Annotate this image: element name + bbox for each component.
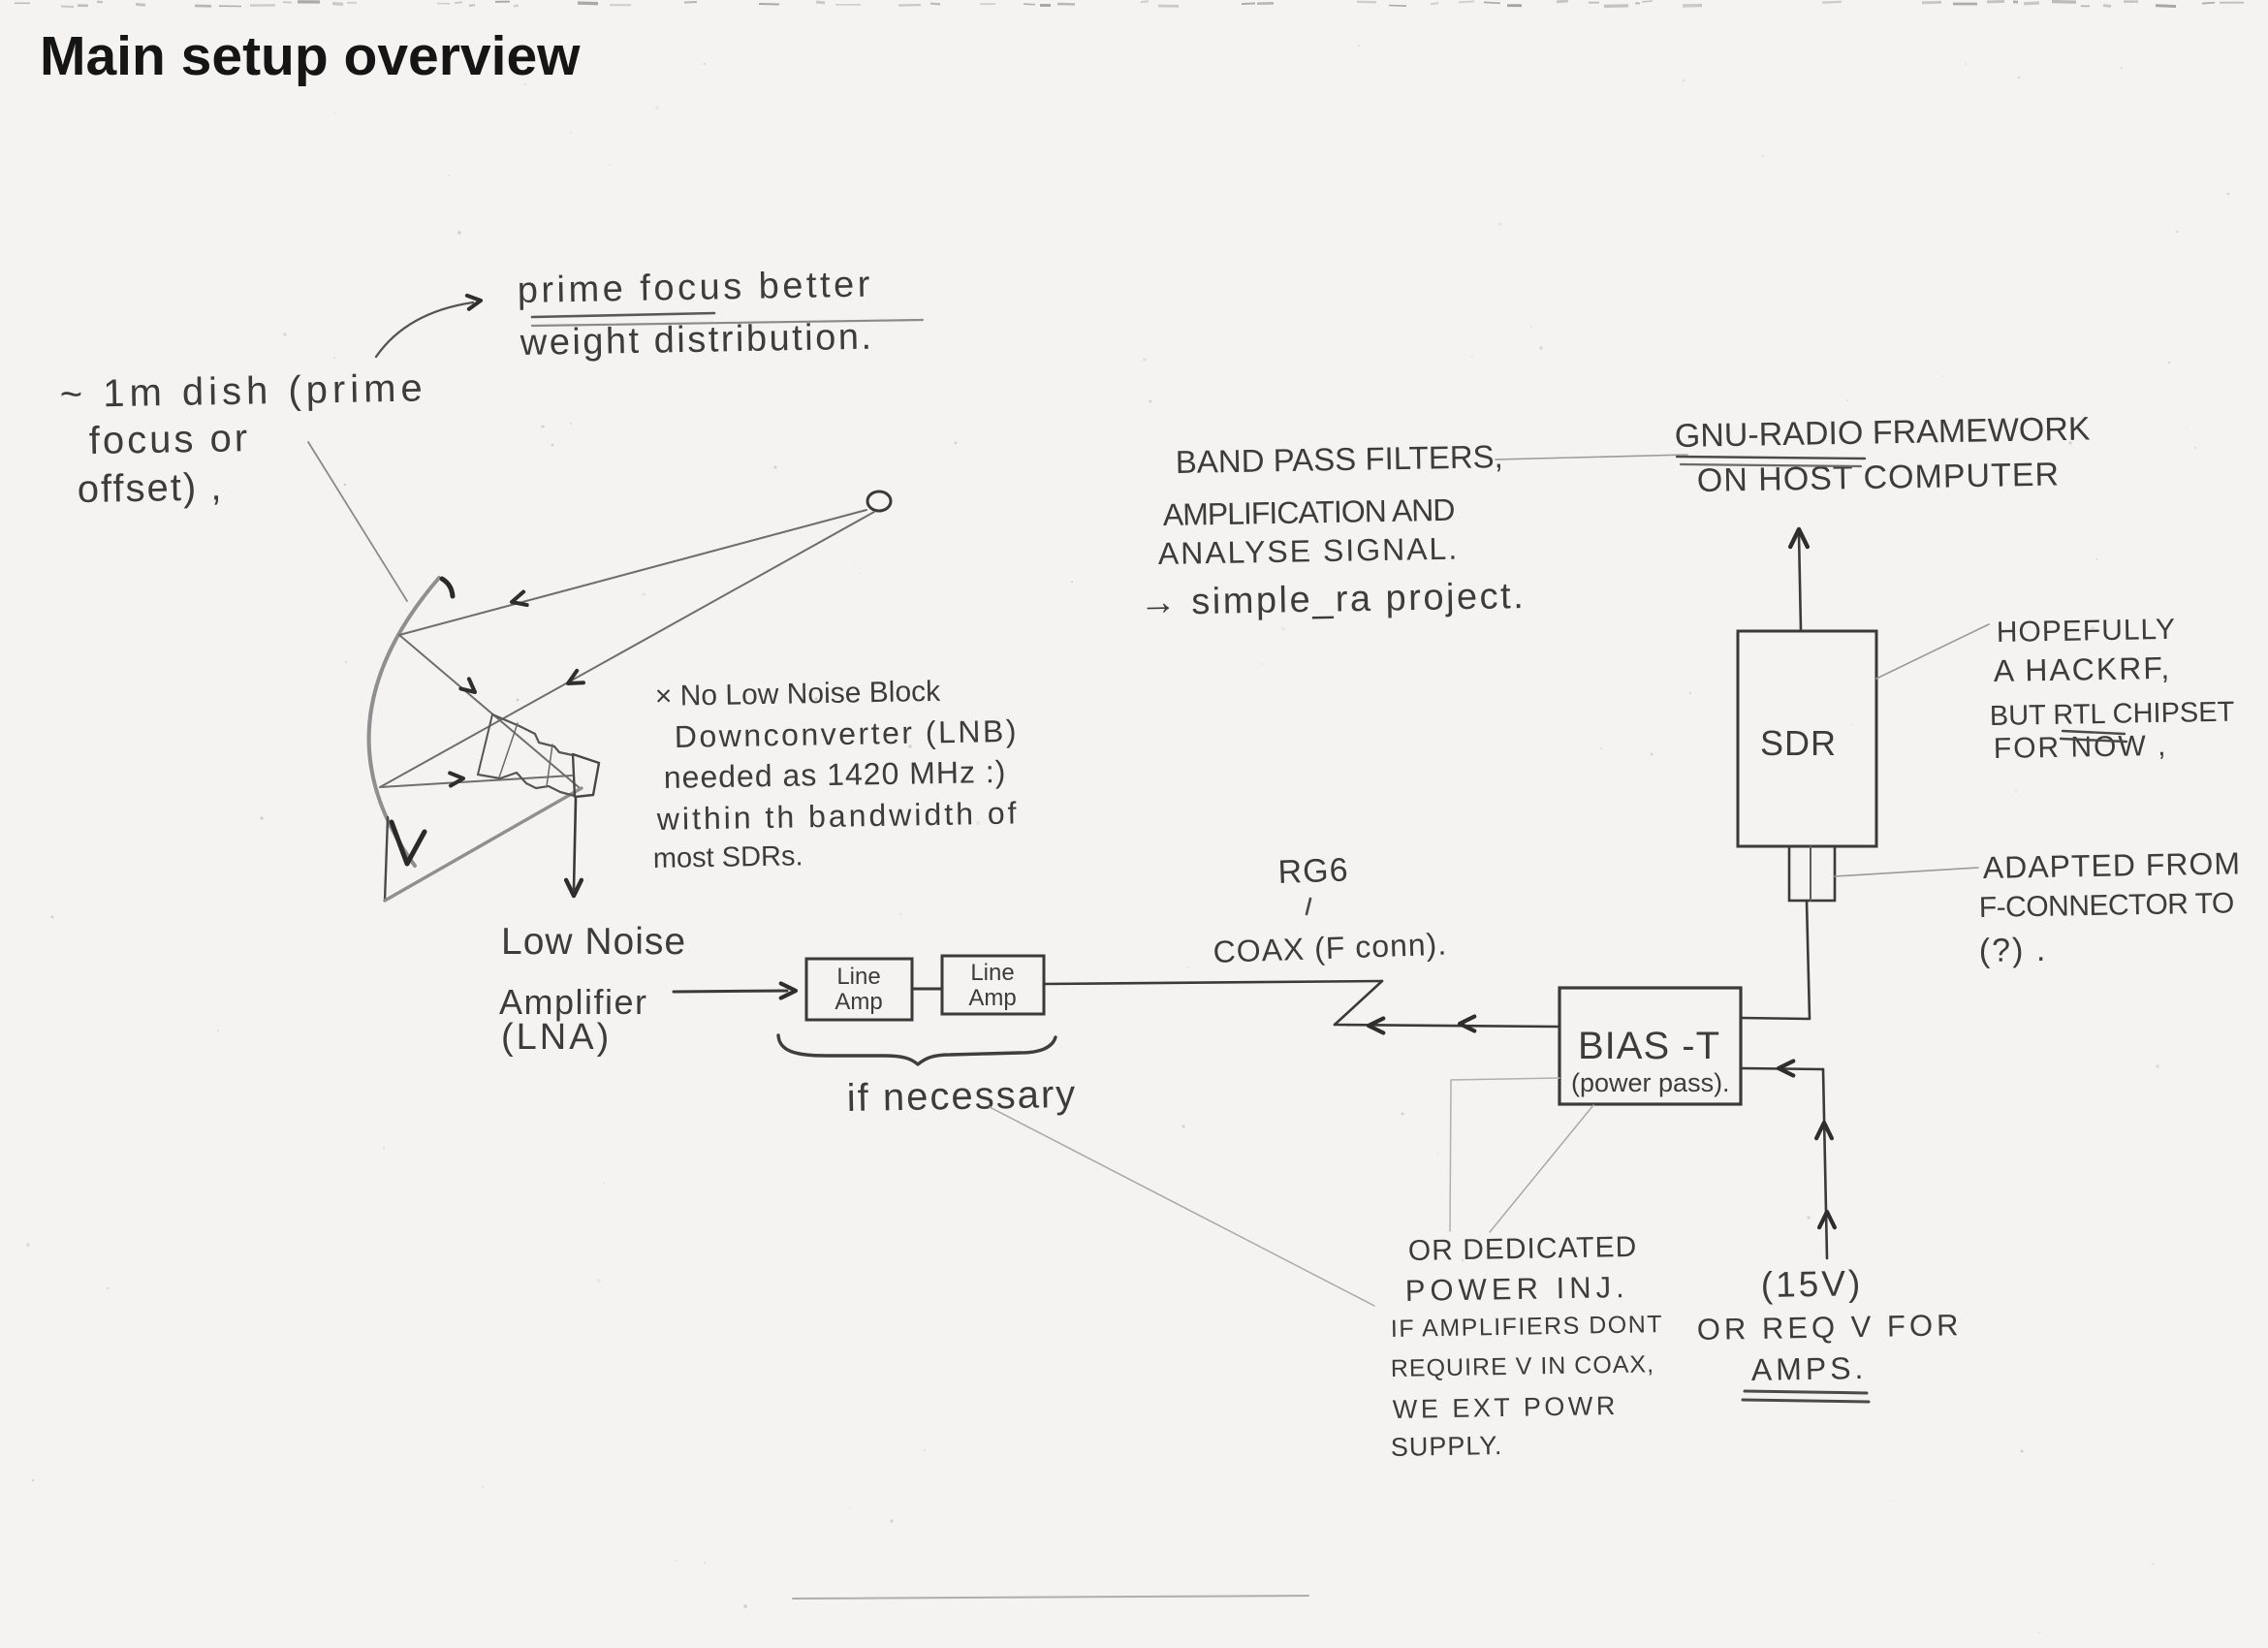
- svg-text:AMPLIFICATION AND: AMPLIFICATION AND: [1162, 492, 1454, 532]
- svg-text:Amp: Amp: [968, 985, 1016, 1011]
- svg-text:AMPS.: AMPS.: [1750, 1350, 1867, 1387]
- svg-text:F-CONNECTOR TO: F-CONNECTOR TO: [1979, 887, 2235, 924]
- svg-text:offset) ,: offset) ,: [77, 465, 223, 511]
- svg-text:ADAPTED FROM: ADAPTED FROM: [1982, 845, 2241, 885]
- svg-text:→ simple_ra project.: → simple_ra project.: [1139, 576, 1526, 623]
- svg-text:POWER INJ.: POWER INJ.: [1405, 1270, 1629, 1308]
- svg-text:REQUIRE V IN COAX,: REQUIRE V IN COAX,: [1391, 1350, 1655, 1382]
- svg-text:(15V): (15V): [1760, 1263, 1863, 1305]
- svg-text:OR REQ V FOR: OR REQ V FOR: [1697, 1308, 1963, 1347]
- svg-text:focus or: focus or: [88, 417, 250, 462]
- svg-text:SUPPLY.: SUPPLY.: [1391, 1431, 1503, 1462]
- svg-text:Main setup overview: Main setup overview: [40, 25, 581, 87]
- svg-text:RG6: RG6: [1277, 851, 1349, 891]
- svg-text:Line: Line: [970, 960, 1014, 986]
- svg-text:(LNA): (LNA): [501, 1017, 612, 1058]
- svg-text:A HACKRF,: A HACKRF,: [1993, 650, 2171, 688]
- svg-text:if necessary: if necessary: [846, 1073, 1077, 1120]
- svg-text:Line: Line: [836, 964, 880, 990]
- svg-text:HOPEFULLY: HOPEFULLY: [1997, 614, 2177, 649]
- svg-text:Low Noise: Low Noise: [501, 921, 686, 963]
- svg-text:BUT RTL CHIPSET: BUT RTL CHIPSET: [1990, 697, 2235, 732]
- svg-text:WE EXT POWR: WE EXT POWR: [1393, 1391, 1620, 1424]
- svg-text:Amp: Amp: [835, 989, 882, 1015]
- svg-text:BIAS -T: BIAS -T: [1578, 1025, 1720, 1067]
- svg-text:OR DEDICATED: OR DEDICATED: [1408, 1231, 1638, 1267]
- svg-text:Amplifier: Amplifier: [499, 982, 648, 1022]
- svg-text:GNU-RADIO FRAMEWORK: GNU-RADIO FRAMEWORK: [1674, 411, 2091, 455]
- svg-text:~ 1m dish (prime: ~ 1m dish (prime: [59, 366, 427, 416]
- svg-text:Downconverter (LNB): Downconverter (LNB): [674, 713, 1019, 754]
- svg-text:ON HOST COMPUTER: ON HOST COMPUTER: [1696, 456, 2060, 499]
- svg-text:needed as 1420 MHz :): needed as 1420 MHz :): [663, 754, 1006, 795]
- svg-text:(?) .: (?) .: [1978, 932, 2047, 969]
- svg-text:ANALYSE SIGNAL.: ANALYSE SIGNAL.: [1157, 531, 1459, 571]
- svg-text:within th bandwidth of: within th bandwidth of: [655, 795, 1019, 837]
- svg-text:prime focus better: prime focus better: [517, 265, 873, 311]
- svg-text:BAND PASS FILTERS,: BAND PASS FILTERS,: [1175, 438, 1503, 480]
- svg-text:SDR: SDR: [1760, 723, 1837, 763]
- svg-text:(power pass).: (power pass).: [1571, 1068, 1730, 1097]
- svg-text:FOR NOW ,: FOR NOW ,: [1994, 730, 2168, 765]
- svg-text:IF AMPLIFIERS DONT: IF AMPLIFIERS DONT: [1391, 1311, 1664, 1343]
- svg-text:× No Low Noise Block: × No Low Noise Block: [655, 676, 942, 713]
- svg-text:most SDRs.: most SDRs.: [653, 840, 803, 874]
